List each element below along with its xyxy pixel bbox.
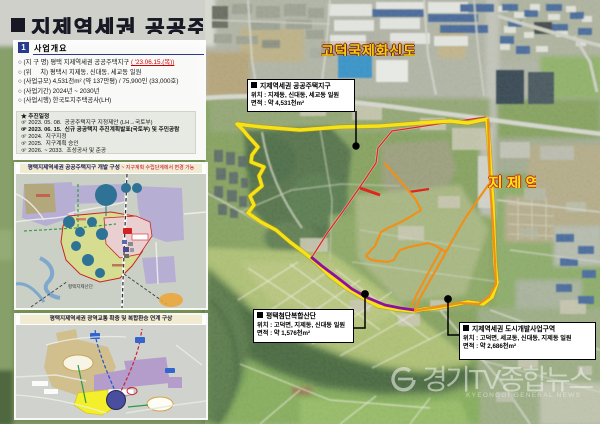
svg-text:경기TV종합뉴스: 경기TV종합뉴스 <box>422 364 594 395</box>
svg-text:KYEONGGI GENERAL NEWS: KYEONGGI GENERAL NEWS <box>466 392 581 399</box>
svg-text:평택지제산단: 평택지제산단 <box>68 283 93 290</box>
